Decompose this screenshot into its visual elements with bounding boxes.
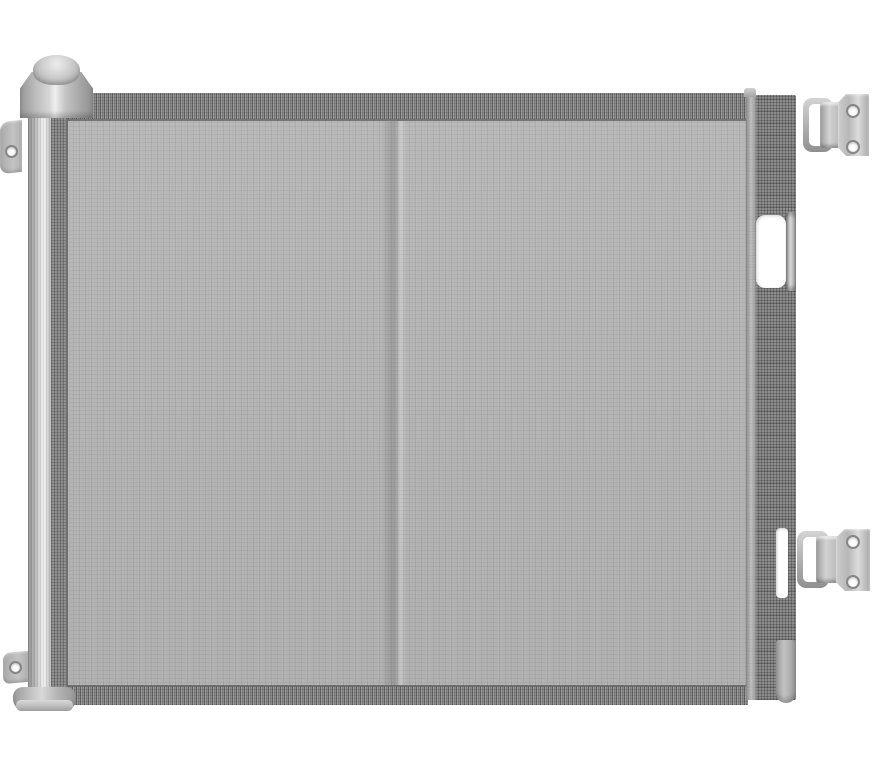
handle-cutout [756, 215, 786, 288]
screw-hole-tab-bottom [9, 661, 22, 674]
latch-slot [776, 528, 788, 598]
screw-hole-tab-top [5, 145, 18, 158]
rolled-mesh-strip [51, 110, 68, 688]
mesh-panel [64, 93, 748, 703]
roller-cap-dome [33, 55, 80, 85]
gate-bar-top-tab [744, 88, 756, 97]
screw-hole-bracket-bottom-2 [846, 575, 860, 589]
screw-hole-bracket-top-1 [846, 104, 860, 118]
mesh-bottom-band [64, 685, 748, 705]
mesh-sheen-overlay [64, 117, 748, 687]
product-photo-retractable-gate [0, 0, 872, 768]
gate-bar-edge-highlight [746, 95, 757, 700]
mesh-center-fold [382, 119, 406, 685]
screw-hole-bracket-top-2 [846, 140, 860, 154]
roller-base-lip [16, 700, 73, 711]
handle-rod [786, 212, 796, 291]
latch-rod-bottom [776, 640, 796, 703]
mesh-top-band [64, 93, 748, 121]
screw-hole-bracket-bottom-1 [846, 535, 860, 549]
